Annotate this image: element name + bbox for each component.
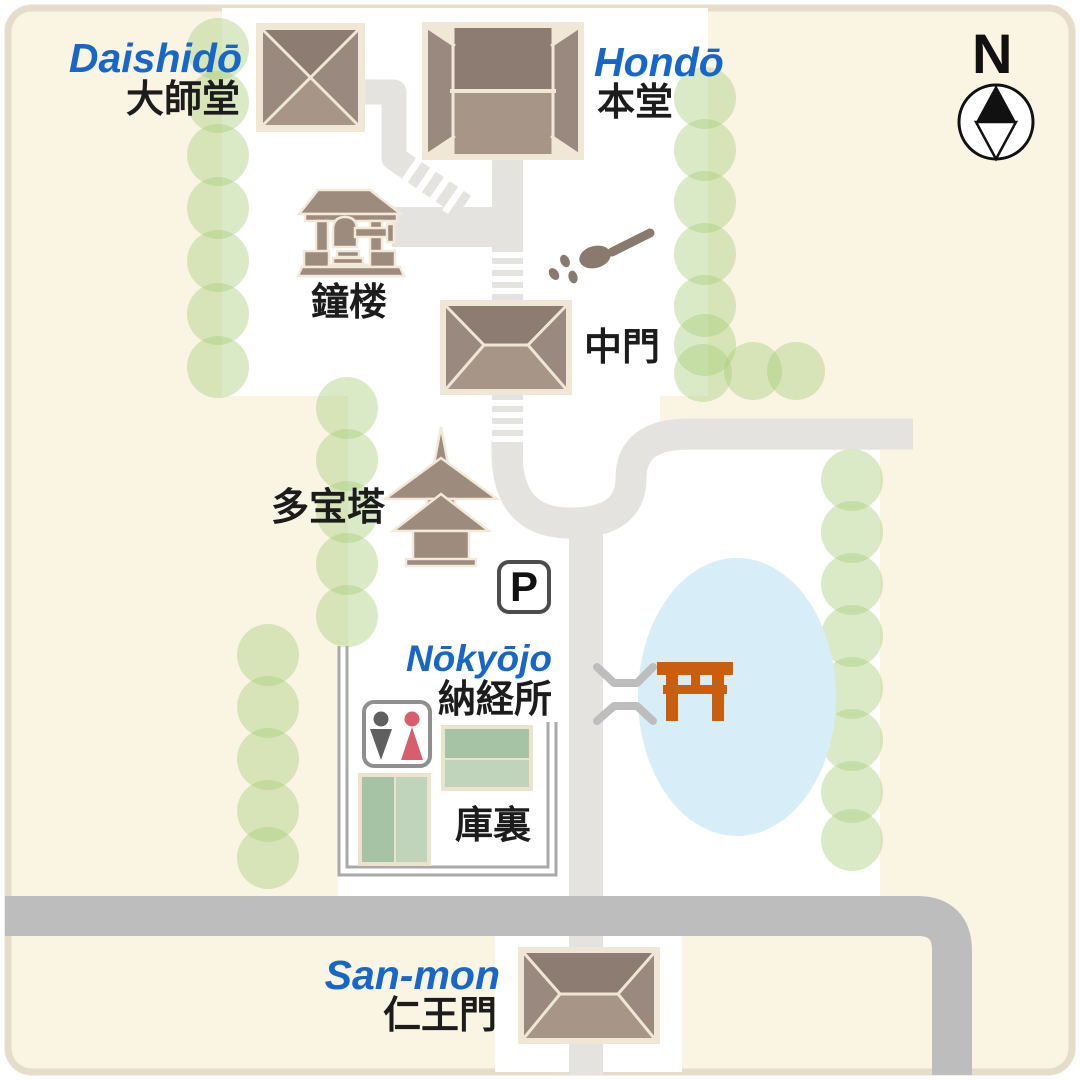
label-sanmon-romaji: San-mon <box>325 955 500 996</box>
label-nokyojo-kanji: 納経所 <box>438 681 552 719</box>
label-shoro-kanji: 鐘楼 <box>311 284 387 322</box>
compass-north-label: N <box>972 26 1012 82</box>
restroom-icon <box>364 702 430 766</box>
label-daishido-kanji: 大師堂 <box>126 81 240 119</box>
temple-grounds-map: Daishidō 大師堂 Hondō 本堂 鐘楼 中門 多宝塔 Nōkyōjo … <box>0 0 1080 1080</box>
building-sanmon <box>518 947 660 1044</box>
compass-icon <box>959 85 1033 159</box>
label-kuri-kanji: 庫裏 <box>455 807 531 845</box>
label-nokyojo-romaji: Nōkyōjo <box>406 640 552 677</box>
label-hondo-kanji: 本堂 <box>597 84 673 122</box>
label-daishido-romaji: Daishidō <box>69 38 242 79</box>
building-daishido <box>256 23 365 132</box>
building-chumon <box>440 300 572 395</box>
building-hondo <box>422 22 584 160</box>
label-chumon-kanji: 中門 <box>584 329 660 367</box>
parking-label: P <box>499 562 549 612</box>
label-sanmon-kanji: 仁王門 <box>383 997 497 1035</box>
label-hondo-romaji: Hondō <box>594 42 724 83</box>
map-graphics <box>0 0 1080 1080</box>
label-tahoto-kanji: 多宝塔 <box>271 489 385 527</box>
